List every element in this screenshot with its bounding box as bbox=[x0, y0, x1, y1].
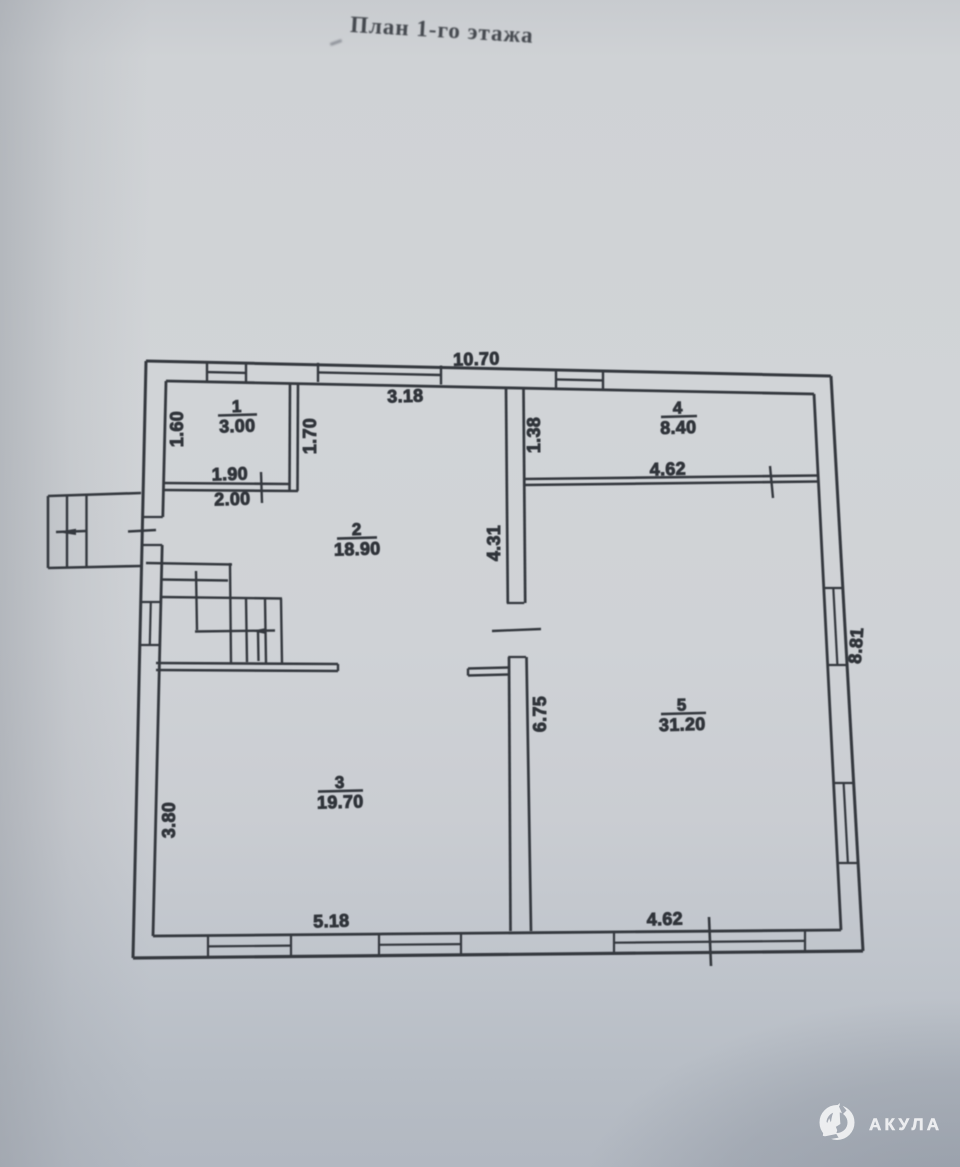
svg-text:АКУЛА: АКУЛА bbox=[869, 1115, 942, 1134]
